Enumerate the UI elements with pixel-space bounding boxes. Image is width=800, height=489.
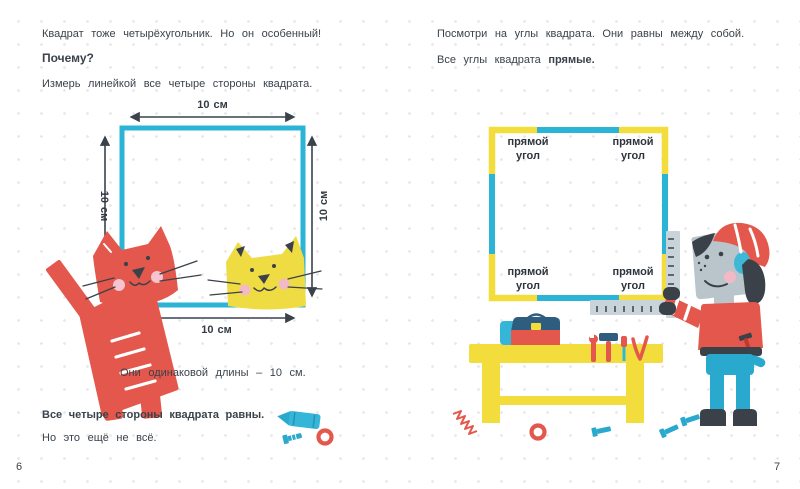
right-statement-prefix: Все углы квадрата (437, 54, 541, 66)
dimension-label-right: 10 см (318, 184, 332, 228)
page-number-right: 7 (774, 461, 780, 473)
toolbox-icon (500, 315, 560, 346)
measured-square-illustration (105, 117, 312, 318)
ruler-horizontal (590, 300, 678, 315)
corner-label-top-left: прямой угол (499, 136, 557, 164)
ruler-vertical (666, 231, 680, 318)
left-intro-text: Квадрат тоже четырёхугольник. Но он особ… (42, 27, 321, 41)
dog-character (659, 223, 770, 426)
page-number-left: 6 (16, 461, 22, 473)
tools-icons (589, 333, 647, 362)
corner-label-top-right: прямой угол (604, 136, 662, 164)
left-instruction-text: Измерь линейкой все четыре стороны квадр… (42, 77, 312, 91)
book-spread: Квадрат тоже четырёхугольник. Но он особ… (0, 0, 800, 489)
corner-label-bottom-left: прямой угол (499, 266, 557, 294)
dimension-label-bottom: 10 см (130, 324, 303, 336)
left-conclusion-bold: Все четыре стороны квадрата равны. (42, 408, 264, 422)
left-question-heading: Почему? (42, 51, 94, 67)
scattered-parts (453, 411, 701, 439)
crayon-icon (276, 409, 321, 429)
dimension-label-left: 10 см (96, 184, 110, 228)
left-conclusion-rest: Но это ещё не всё. (42, 431, 157, 445)
yellow-cat (208, 236, 322, 310)
corner-label-bottom-right: прямой угол (604, 266, 662, 294)
workbench (469, 344, 663, 423)
dimension-label-top: 10 см (122, 99, 303, 111)
right-intro-text: Посмотри на углы квадрата. Они равны меж… (437, 27, 744, 41)
right-statement-text: Все углы квадрата прямые. (437, 53, 595, 67)
ring-icon (319, 431, 332, 444)
screw-icon (282, 431, 303, 444)
left-result-text: Они одинаковой длины – 10 см. (120, 366, 306, 380)
right-statement-bold: прямые. (548, 54, 594, 66)
